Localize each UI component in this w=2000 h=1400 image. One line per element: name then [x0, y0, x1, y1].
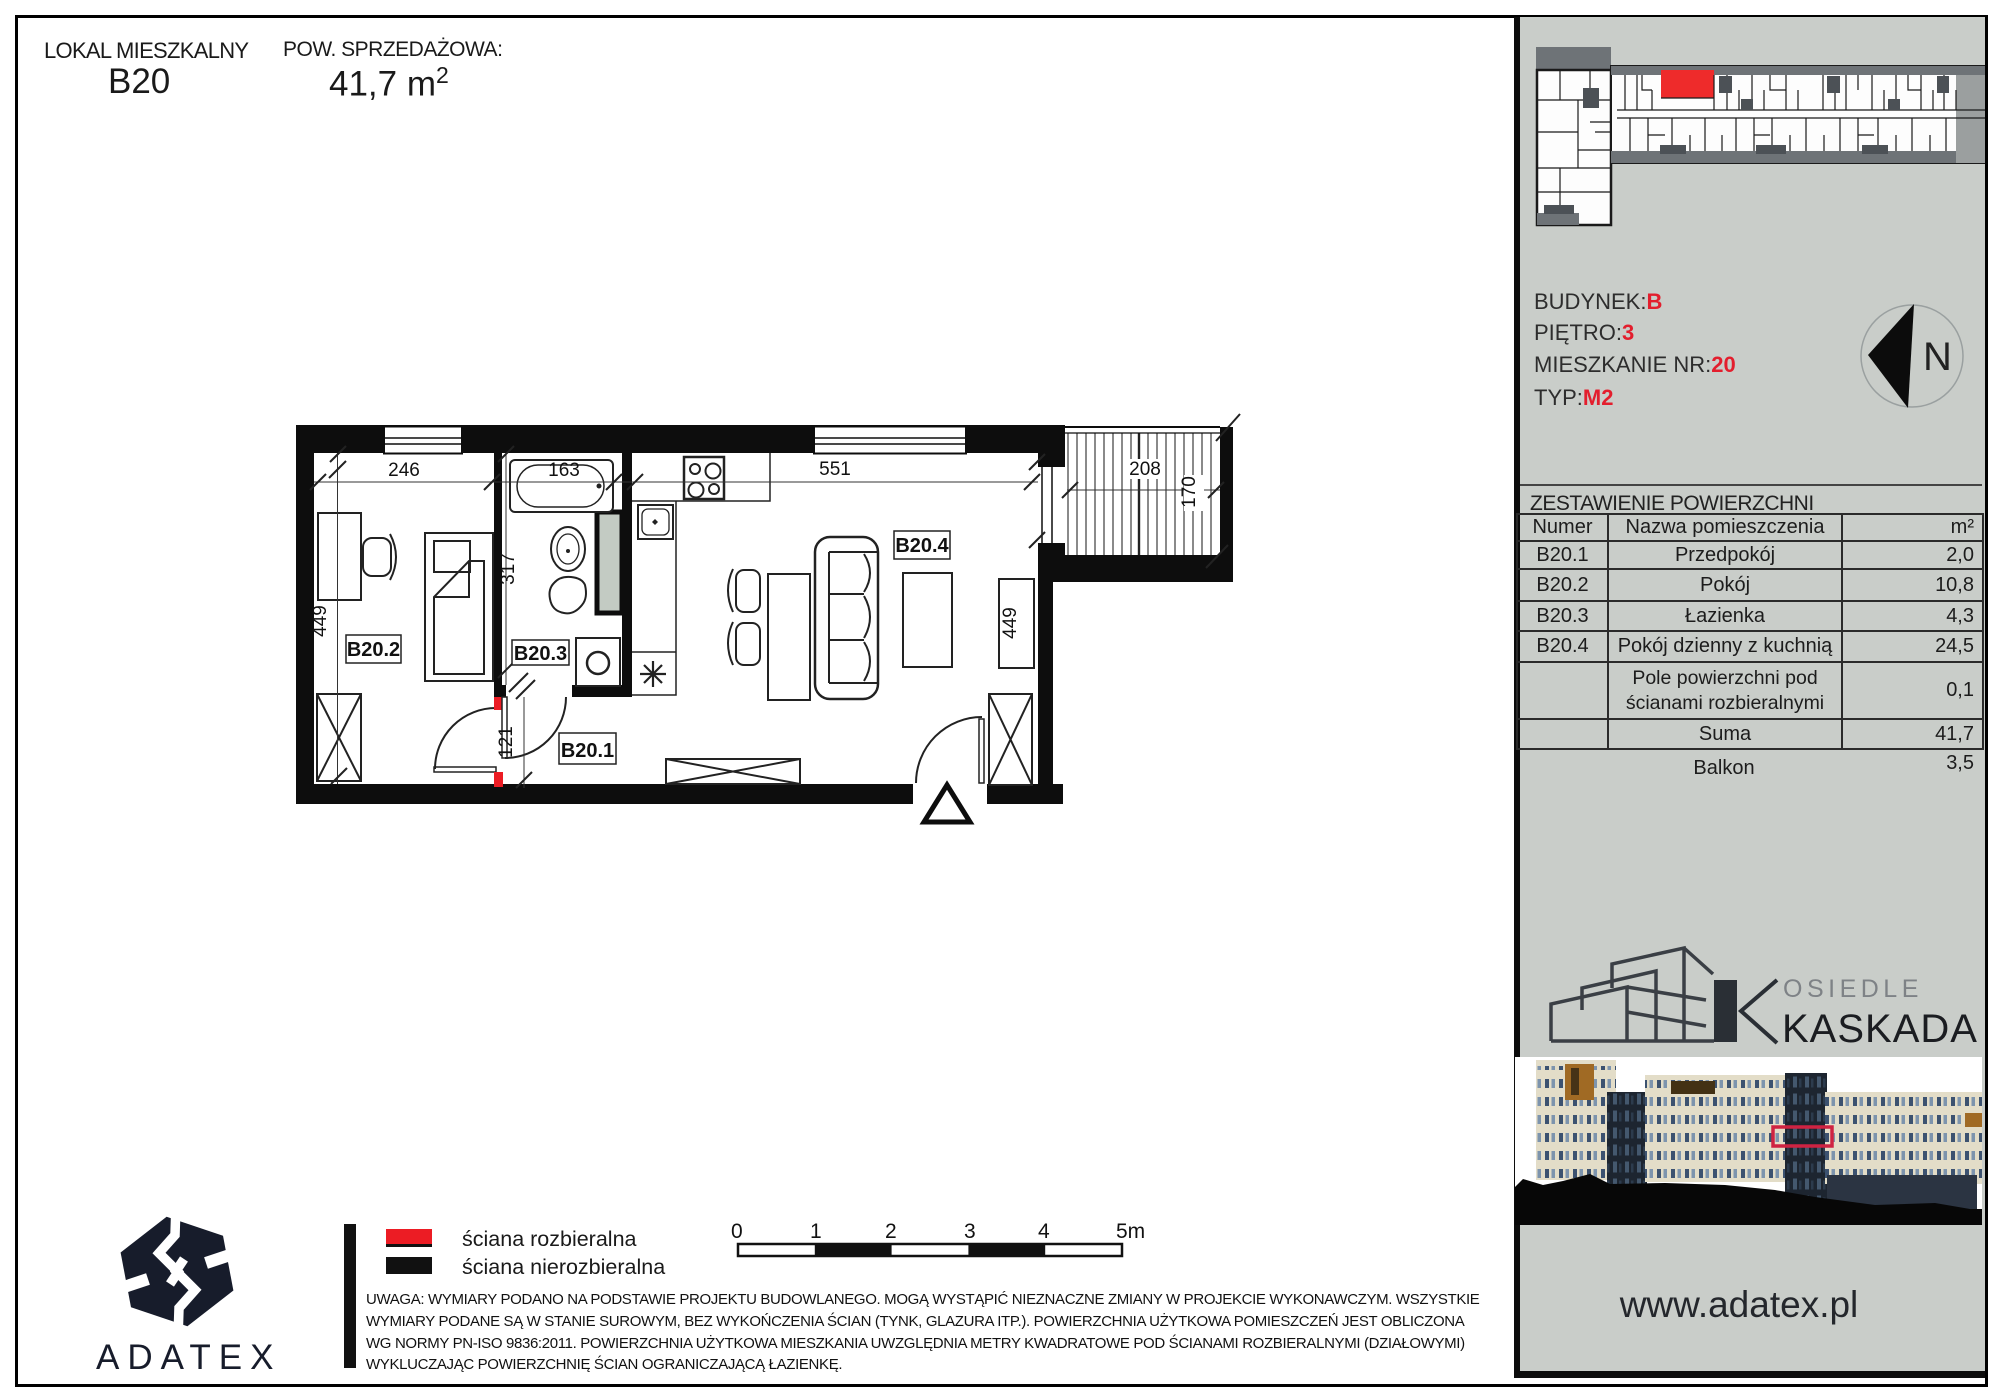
svg-text:3: 3 — [964, 1220, 976, 1243]
svg-text:B20.1: B20.1 — [561, 740, 614, 762]
svg-text:163: 163 — [548, 460, 580, 481]
svg-text:449: 449 — [1000, 607, 1021, 639]
svg-text:ADATEX: ADATEX — [96, 1338, 281, 1377]
svg-text:1: 1 — [810, 1220, 822, 1243]
svg-text:246: 246 — [388, 460, 420, 481]
svg-text:317: 317 — [498, 553, 519, 585]
svg-text:4: 4 — [1038, 1220, 1050, 1243]
svg-text:KASKADA: KASKADA — [1782, 1007, 1978, 1051]
svg-text:2: 2 — [885, 1220, 897, 1243]
svg-text:170: 170 — [1179, 476, 1200, 508]
svg-text:0: 0 — [731, 1220, 743, 1243]
svg-text:121: 121 — [496, 726, 517, 758]
svg-text:N: N — [1923, 335, 1952, 379]
svg-text:B20.4: B20.4 — [895, 535, 949, 557]
svg-text:551: 551 — [819, 459, 851, 480]
svg-text:208: 208 — [1129, 459, 1161, 480]
svg-text:OSIEDLE: OSIEDLE — [1783, 975, 1923, 1003]
svg-text:B20.2: B20.2 — [347, 639, 400, 661]
svg-text:5m: 5m — [1116, 1220, 1145, 1243]
svg-text:449: 449 — [310, 605, 331, 637]
svg-text:B20.3: B20.3 — [514, 643, 567, 665]
